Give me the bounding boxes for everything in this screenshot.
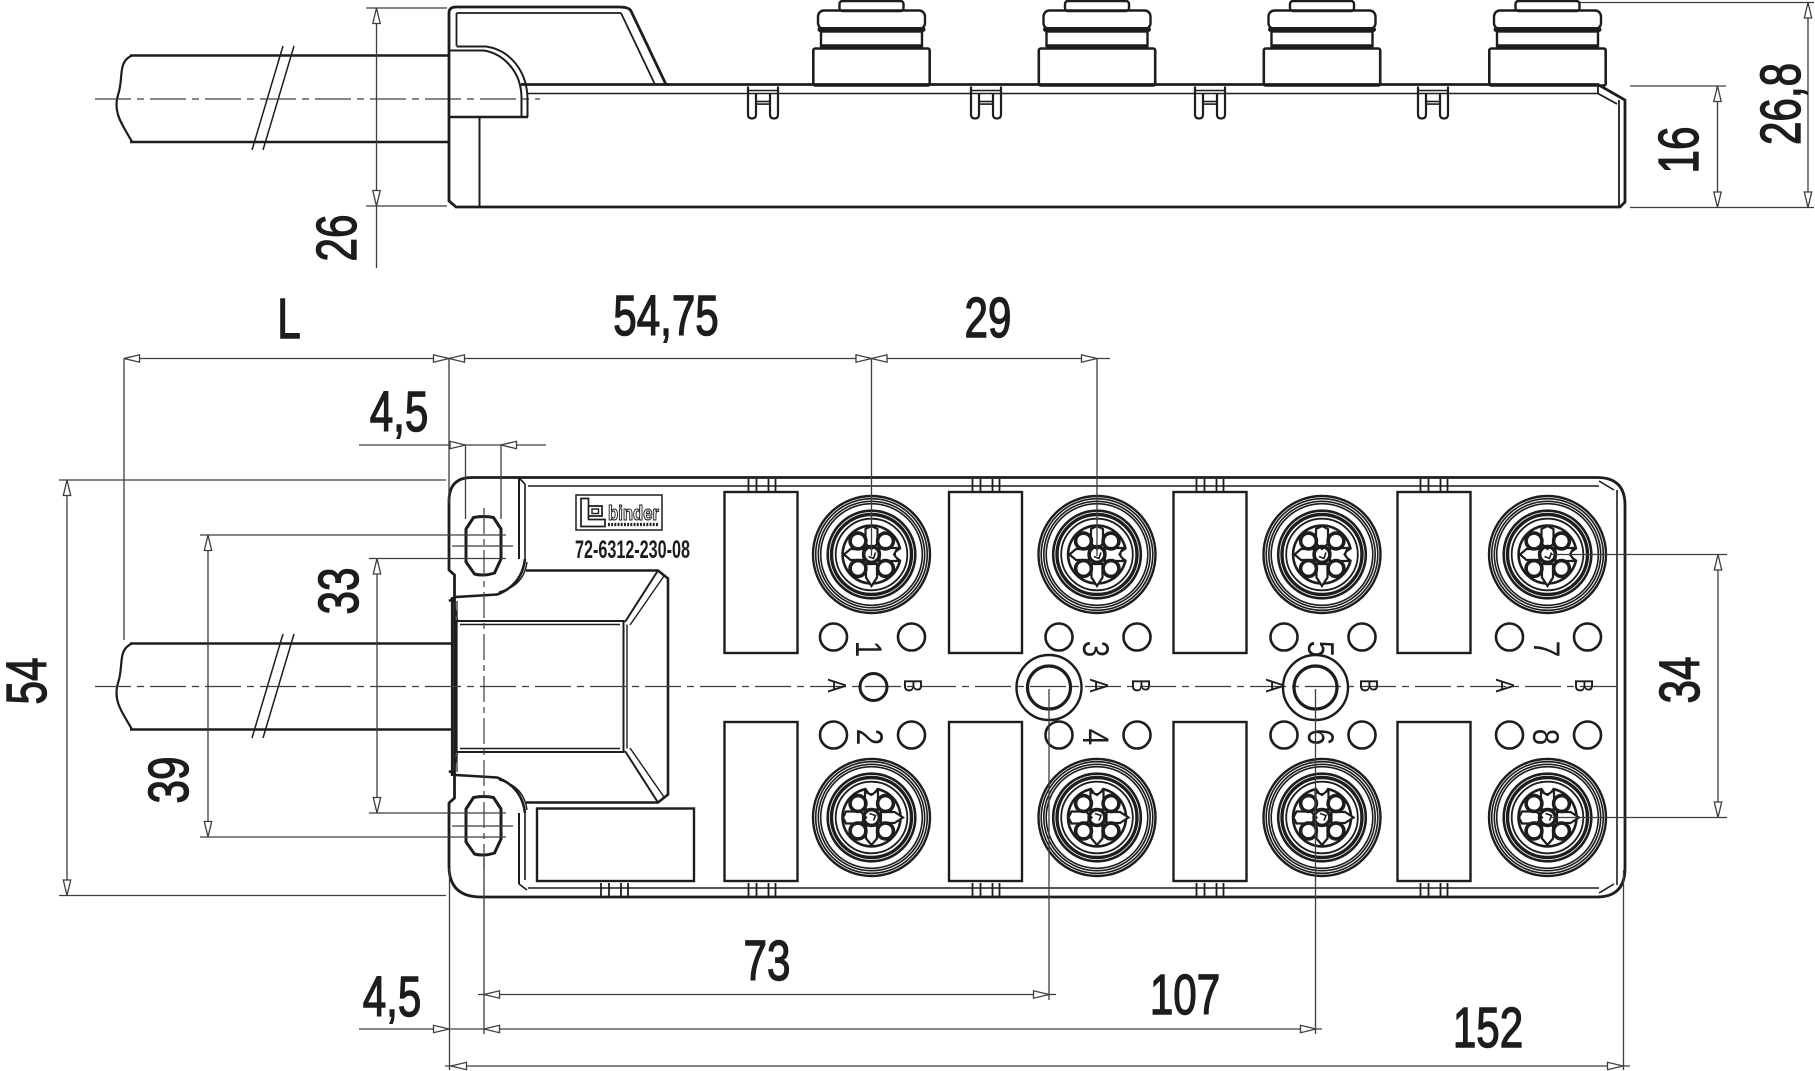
svg-text:4,5: 4,5 [363, 965, 422, 1029]
svg-text:8: 8 [1524, 729, 1565, 745]
svg-text:16: 16 [1647, 127, 1711, 174]
svg-text:72-6312-230-08: 72-6312-230-08 [575, 536, 690, 564]
svg-text:54: 54 [0, 658, 59, 705]
svg-text:B: B [1354, 679, 1383, 693]
svg-text:4: 4 [1074, 729, 1115, 745]
svg-text:A: A [1490, 679, 1519, 693]
svg-text:2: 2 [848, 729, 889, 745]
svg-text:4,5: 4,5 [370, 380, 429, 444]
svg-text:26: 26 [305, 215, 369, 262]
svg-text:73: 73 [744, 929, 791, 993]
svg-text:5: 5 [1299, 641, 1340, 657]
svg-text:A: A [822, 679, 851, 693]
svg-text:A: A [1260, 679, 1289, 693]
svg-text:34: 34 [1648, 657, 1712, 704]
svg-text:39: 39 [137, 757, 201, 804]
svg-text:1: 1 [847, 641, 888, 657]
svg-text:B: B [898, 679, 927, 693]
svg-text:29: 29 [965, 286, 1012, 350]
svg-text:A: A [1084, 679, 1113, 693]
svg-text:binder: binder [608, 503, 659, 525]
svg-text:B: B [1569, 679, 1598, 693]
svg-text:54,75: 54,75 [613, 284, 719, 348]
svg-text:6: 6 [1299, 729, 1340, 745]
svg-text:7: 7 [1525, 641, 1566, 657]
svg-text:26,8: 26,8 [1749, 63, 1813, 145]
svg-text:3: 3 [1074, 641, 1115, 657]
svg-text:107: 107 [1150, 963, 1220, 1027]
svg-text:33: 33 [307, 568, 371, 615]
svg-text:B: B [1126, 679, 1155, 693]
svg-text:L: L [277, 287, 300, 351]
svg-text:152: 152 [1453, 996, 1523, 1060]
